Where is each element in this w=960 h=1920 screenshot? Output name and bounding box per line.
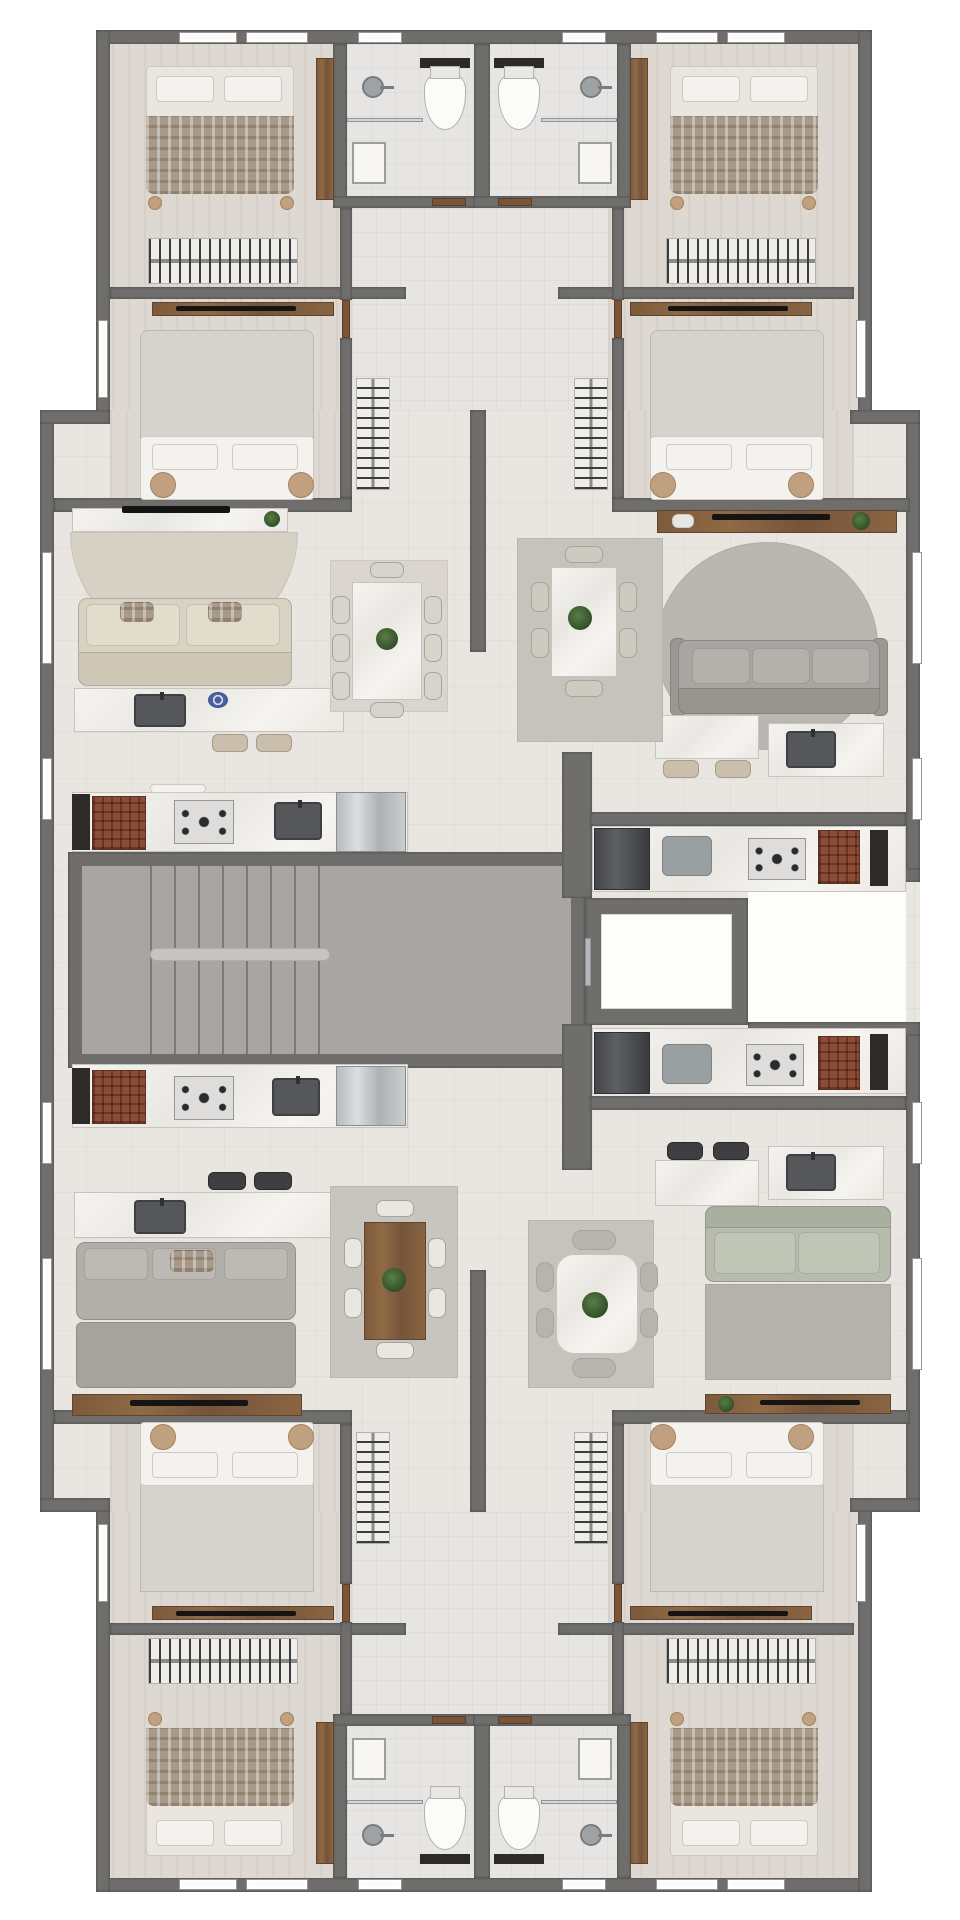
bed2-blanket-r (650, 330, 824, 442)
closet-rack (148, 238, 298, 284)
window-side-a (98, 320, 108, 398)
wall-closet (110, 287, 406, 299)
bed2-pouf-b (288, 472, 314, 498)
wall-bath-south-rb (473, 1714, 631, 1726)
plant-table-bl (382, 1268, 406, 1292)
dining-chair-bl (376, 1342, 414, 1359)
window-top-b-r (656, 32, 718, 43)
fridge-bl (336, 1066, 406, 1126)
plant-pot-a-r (802, 196, 816, 210)
shower-glass-rb (541, 1800, 617, 1804)
bed2-pouf-a-r (788, 472, 814, 498)
sofa-cushion-br (714, 1232, 796, 1274)
wall-bedroom-hall-b-rb (612, 1424, 624, 1584)
bath-door-b (432, 1716, 466, 1724)
cabinet-crate-bl (92, 1070, 146, 1124)
dining-chair (332, 634, 350, 662)
window-side-c-r (912, 758, 922, 820)
tv-bl (130, 1400, 248, 1406)
window-top-c-r (562, 32, 606, 43)
window-top-b (246, 32, 308, 43)
fridge-dark-r (594, 828, 650, 890)
window-top-c (358, 32, 402, 43)
plant-table-r (568, 606, 592, 630)
window-top-c-rb (562, 1879, 606, 1890)
shower-head-rb (580, 1824, 602, 1846)
island-a-r (655, 715, 759, 759)
fridge (336, 792, 406, 852)
sofa-chaise-bl (76, 1322, 296, 1388)
bed2-pouf-b-r (650, 472, 676, 498)
bed2-pillow-a-b (152, 1452, 218, 1478)
dining-chair (332, 596, 350, 624)
bed-pillow-b-rb (682, 1820, 740, 1846)
island-stool-r (715, 760, 751, 778)
bedroom-door (342, 300, 350, 338)
wall-bedroom-hall-b-b (340, 1424, 352, 1584)
dining-chair-br (640, 1262, 658, 1292)
wall-kitchen-right (590, 812, 906, 826)
sofa-cushion-r (812, 648, 870, 684)
bed-pillow-b-r (682, 76, 740, 102)
fridge-dark-br (594, 1032, 650, 1094)
plant-console-r (852, 512, 870, 530)
dining-chair (424, 634, 442, 662)
island-a-br (655, 1160, 759, 1206)
tv-br (760, 1400, 860, 1405)
dining-chair (370, 702, 404, 718)
dining-chair (424, 596, 442, 624)
sofa-back (78, 652, 292, 686)
bed-pillow-a-b (156, 1820, 214, 1846)
wall-bedroom-hall-a-r (612, 208, 624, 300)
wall-stub-left (40, 410, 110, 424)
bedroom-tv-rb (668, 1611, 788, 1616)
wall-stub-left-b (40, 1498, 110, 1512)
wall-bath-west-r (617, 44, 631, 208)
window-side-c (42, 758, 52, 820)
stove-bl (174, 1076, 234, 1120)
kitchen-sink (274, 802, 322, 840)
wall-lobby-b (562, 1024, 592, 1170)
wall-bath-west (333, 44, 347, 208)
window-side-b-r (912, 552, 922, 664)
sofa-cushion-br (798, 1232, 880, 1274)
bedroom-door-r (614, 300, 622, 338)
window-side-a-r (856, 320, 866, 398)
plant-table (376, 628, 398, 650)
plant-table-br (582, 1292, 608, 1318)
shower-head-b (362, 1824, 384, 1846)
shoe-rack (356, 378, 390, 490)
sofa-cushion-bl (224, 1248, 288, 1280)
window-top-a-b (179, 1879, 237, 1890)
wall-bedroom-hall-a-b (340, 1622, 352, 1714)
island-stool-bl (208, 1172, 246, 1190)
bath-door-rb (498, 1716, 532, 1724)
bed2-pillow-a (152, 444, 218, 470)
bed-blanket-b (146, 1728, 294, 1806)
window-side-b-rb (912, 1258, 922, 1370)
wall-closet-rb (558, 1623, 854, 1635)
closet-rack-rb (666, 1638, 816, 1684)
wall-bath-south-b (333, 1714, 491, 1726)
window-top-a (179, 32, 237, 43)
window-side-b-b (42, 1258, 52, 1370)
bed2-blanket (140, 330, 314, 442)
plant-pot-b-rb (670, 1712, 684, 1726)
shoe-rack-rb (574, 1432, 608, 1544)
cabinet-crate-br (818, 1036, 860, 1090)
sofa-pillow-b (208, 602, 242, 622)
shoe-rack-b (356, 1432, 390, 1544)
window-top-b-rb (656, 1879, 718, 1890)
wardrobe-side (316, 58, 334, 200)
island-stool-bl (254, 1172, 292, 1190)
window-side-b (42, 552, 52, 664)
elevator-door (585, 938, 591, 986)
window-side-c-rb (912, 1102, 922, 1164)
wall-lobby (562, 752, 592, 898)
wall-stub-right-b (850, 1498, 920, 1512)
sofa-pillow-a (120, 602, 154, 622)
island-stool-a (212, 734, 248, 752)
bed2-pouf-b-b (288, 1424, 314, 1450)
wall-bath-west-b (333, 1714, 347, 1878)
cabinet-black-br (870, 1034, 888, 1090)
shower-head-r (580, 76, 602, 98)
bath-door (432, 198, 466, 206)
bath-vanity-rb (578, 1738, 612, 1780)
plant-console (264, 511, 280, 527)
floor-elevator (601, 914, 732, 1009)
bath-vanity-b (352, 1738, 386, 1780)
bed-blanket (146, 116, 294, 194)
dining-chair (370, 562, 404, 578)
cabinet-crate-r (818, 830, 860, 884)
dining-chair-br (572, 1358, 616, 1378)
sofa-cushion-r (752, 648, 810, 684)
dining-chair-bl (344, 1288, 362, 1318)
bed-pillow-b-b (224, 1820, 282, 1846)
bed-pillow-a (156, 76, 214, 102)
shower-glass (347, 118, 423, 122)
decor-plate (208, 692, 228, 708)
dining-chair-br (536, 1308, 554, 1338)
window-side-c-b (42, 1102, 52, 1164)
island-sink-br (786, 1154, 836, 1191)
shower-head (362, 76, 384, 98)
bedroom-tv-b (176, 1611, 296, 1616)
bed2-pillow-b-b (232, 1452, 298, 1478)
dining-chair-r (531, 628, 549, 658)
cabinet-grey-r (662, 836, 712, 876)
sofa-pillow-bl (170, 1250, 214, 1272)
plant-pot-b-r (670, 196, 684, 210)
wall-kitchen-right-b (590, 1096, 906, 1110)
bed2-blanket-b (140, 1480, 314, 1592)
wardrobe-side-r (630, 58, 648, 200)
island-stool-br (667, 1142, 703, 1160)
shower-glass-r (541, 118, 617, 122)
living-rug-br (705, 1284, 891, 1380)
bed2-pillow-b-rb (666, 1452, 732, 1478)
wall-bath-center (474, 44, 490, 208)
plant-pot-b-b (280, 1712, 294, 1726)
bath-door-r (498, 198, 532, 206)
wall-bedroom-hall-b (340, 338, 352, 498)
window-top-c-b (358, 1879, 402, 1890)
bedroom-door-b (342, 1584, 350, 1622)
bed2-pillow-b-r (666, 444, 732, 470)
decor-r (672, 514, 694, 528)
cabinet-black-bl (72, 1068, 90, 1124)
floor-landing-b (352, 1512, 608, 1714)
cabinet-black-r (870, 830, 888, 886)
cabinet-black (72, 794, 90, 850)
dish-rack (150, 784, 206, 793)
wall-bath-south-r (473, 196, 631, 208)
floor-landing (352, 208, 608, 410)
bath-vanity (352, 142, 386, 184)
shoe-rack-r (574, 378, 608, 490)
bedroom-tv-r (668, 306, 788, 311)
bed2-pouf-a-rb (788, 1424, 814, 1450)
wall-bath-south (333, 196, 491, 208)
wall-party-b (470, 1270, 486, 1512)
island-sink-bl (134, 1200, 186, 1234)
island-sink-r (786, 731, 836, 768)
bed2-pillow-a-r (746, 444, 812, 470)
dining-chair-bl (376, 1200, 414, 1217)
stove-r (748, 838, 806, 880)
wardrobe-side-rb (630, 1722, 648, 1864)
sofa-back-r (678, 688, 880, 714)
dining-chair (332, 672, 350, 700)
bed-pillow-a-rb (750, 1820, 808, 1846)
plant-pot-a-b (148, 1712, 162, 1726)
dining-chair-r (531, 582, 549, 612)
dining-chair-r (619, 582, 637, 612)
wall-bath-center-b (474, 1714, 490, 1878)
plant-pot-a-rb (802, 1712, 816, 1726)
wall-closet-b (110, 1623, 406, 1635)
bedroom-door-rb (614, 1584, 622, 1622)
wall-bedroom-hall-a (340, 208, 352, 300)
shower-glass-b (347, 1800, 423, 1804)
sofa-back-br (705, 1206, 891, 1228)
bath-mat-rb (494, 1854, 544, 1864)
notch-white (748, 882, 906, 1022)
plant-pot-b (280, 196, 294, 210)
bed2-pillow-a-rb (746, 1452, 812, 1478)
bed-pillow-a-r (750, 76, 808, 102)
dining-chair-br (640, 1308, 658, 1338)
wall-stub-right (850, 410, 920, 424)
island-bl (74, 1192, 344, 1238)
plant-console-br (718, 1396, 734, 1412)
wall-party (470, 410, 486, 652)
island-sink (134, 694, 186, 727)
dining-chair-bl (344, 1238, 362, 1268)
bed-pillow-b (224, 76, 282, 102)
window-side-a-b (98, 1524, 108, 1602)
bed-blanket-rb (670, 1728, 818, 1806)
bed2-pillow-b (232, 444, 298, 470)
island-stool-r (663, 760, 699, 778)
dining-chair-br (536, 1262, 554, 1292)
wall-closet-r (558, 287, 854, 299)
tv-r (712, 514, 830, 520)
sofa-cushion-bl (84, 1248, 148, 1280)
dining-chair-r (565, 680, 603, 697)
window-top-b-b (246, 1879, 308, 1890)
dining-chair-bl (428, 1238, 446, 1268)
bath-mat-b (420, 1854, 470, 1864)
closet-rack-r (666, 238, 816, 284)
bed2-pouf-b-rb (650, 1424, 676, 1450)
dining-chair-br (572, 1230, 616, 1250)
dining-chair-r (565, 546, 603, 563)
bed2-pouf-a (150, 472, 176, 498)
sofa-cushion-r (692, 648, 750, 684)
wall-bedroom-hall-a-rb (612, 1622, 624, 1714)
dining-chair-bl (428, 1288, 446, 1318)
plant-pot-a (148, 196, 162, 210)
island-stool-b (256, 734, 292, 752)
tv (122, 506, 230, 513)
stove-br (746, 1044, 804, 1086)
wardrobe-side-b (316, 1722, 334, 1864)
kitchen-sink-bl (272, 1078, 320, 1116)
cabinet-grey-br (662, 1044, 712, 1084)
cabinet-crate (92, 796, 146, 850)
floor-plan-canvas: Residential floor plan — four apartments… (0, 0, 960, 1920)
island-stool-br (713, 1142, 749, 1160)
stair-rail (150, 948, 330, 961)
wall-bath-west-rb (617, 1714, 631, 1878)
closet-rack-b (148, 1638, 298, 1684)
window-top-a-rb (727, 1879, 785, 1890)
bed2-pouf-a-b (150, 1424, 176, 1450)
wall-bedroom-hall-b-r (612, 338, 624, 498)
dining-chair (424, 672, 442, 700)
bath-vanity-r (578, 142, 612, 184)
window-side-a-rb (856, 1524, 866, 1602)
bed-blanket-r (670, 116, 818, 194)
bed2-blanket-rb (650, 1480, 824, 1592)
dining-chair-r (619, 628, 637, 658)
stove (174, 800, 234, 844)
bedroom-tv (176, 306, 296, 311)
window-top-a-r (727, 32, 785, 43)
